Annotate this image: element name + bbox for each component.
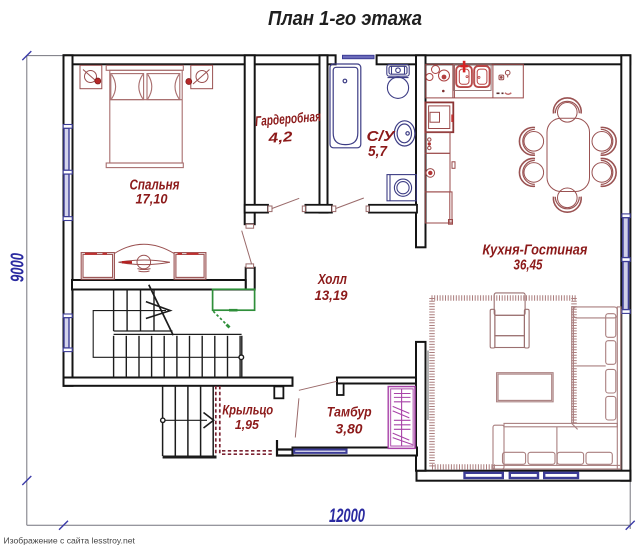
svg-text:9000: 9000 bbox=[8, 253, 28, 282]
svg-text:12000: 12000 bbox=[329, 506, 365, 527]
svg-text:13,19: 13,19 bbox=[315, 287, 348, 303]
svg-text:3,80: 3,80 bbox=[336, 422, 363, 437]
svg-text:1,95: 1,95 bbox=[235, 417, 260, 432]
svg-text:Тамбур: Тамбур bbox=[327, 405, 372, 420]
svg-text:5,7: 5,7 bbox=[368, 144, 388, 160]
svg-text:17,10: 17,10 bbox=[136, 191, 168, 207]
svg-text:План 1-го этажа: План 1-го этажа bbox=[268, 7, 422, 30]
svg-text:Кухня-Гостиная: Кухня-Гостиная bbox=[482, 242, 587, 259]
svg-text:Крыльцо: Крыльцо bbox=[222, 403, 273, 418]
svg-text:36,45: 36,45 bbox=[514, 258, 544, 274]
svg-text:С/У: С/У bbox=[367, 128, 397, 145]
svg-text:4,2: 4,2 bbox=[267, 128, 294, 146]
svg-text:Изображение с сайта lesstroy.n: Изображение с сайта lesstroy.net bbox=[4, 536, 136, 546]
svg-text:Холл: Холл bbox=[317, 272, 347, 288]
